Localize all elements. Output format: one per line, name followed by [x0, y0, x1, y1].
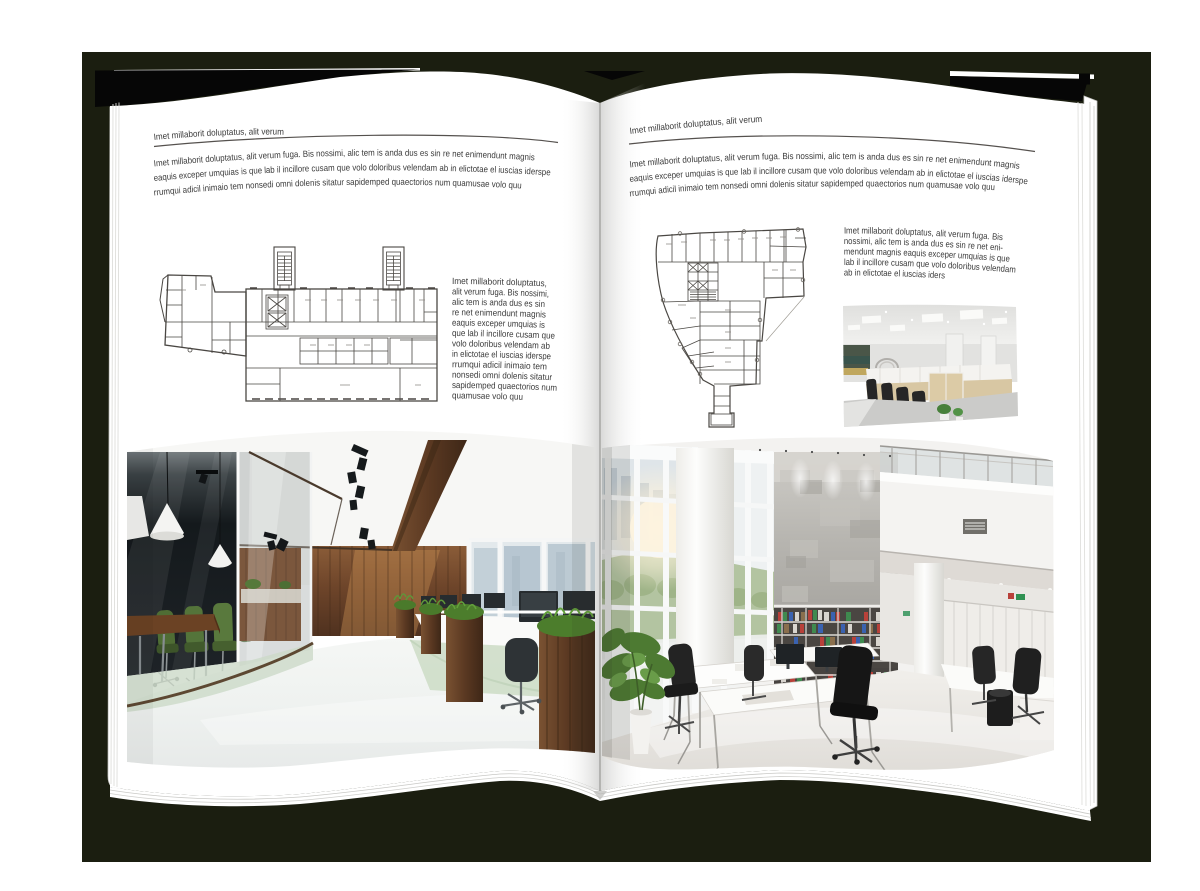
- svg-text:quamusae volo quu: quamusae volo quu: [452, 390, 523, 401]
